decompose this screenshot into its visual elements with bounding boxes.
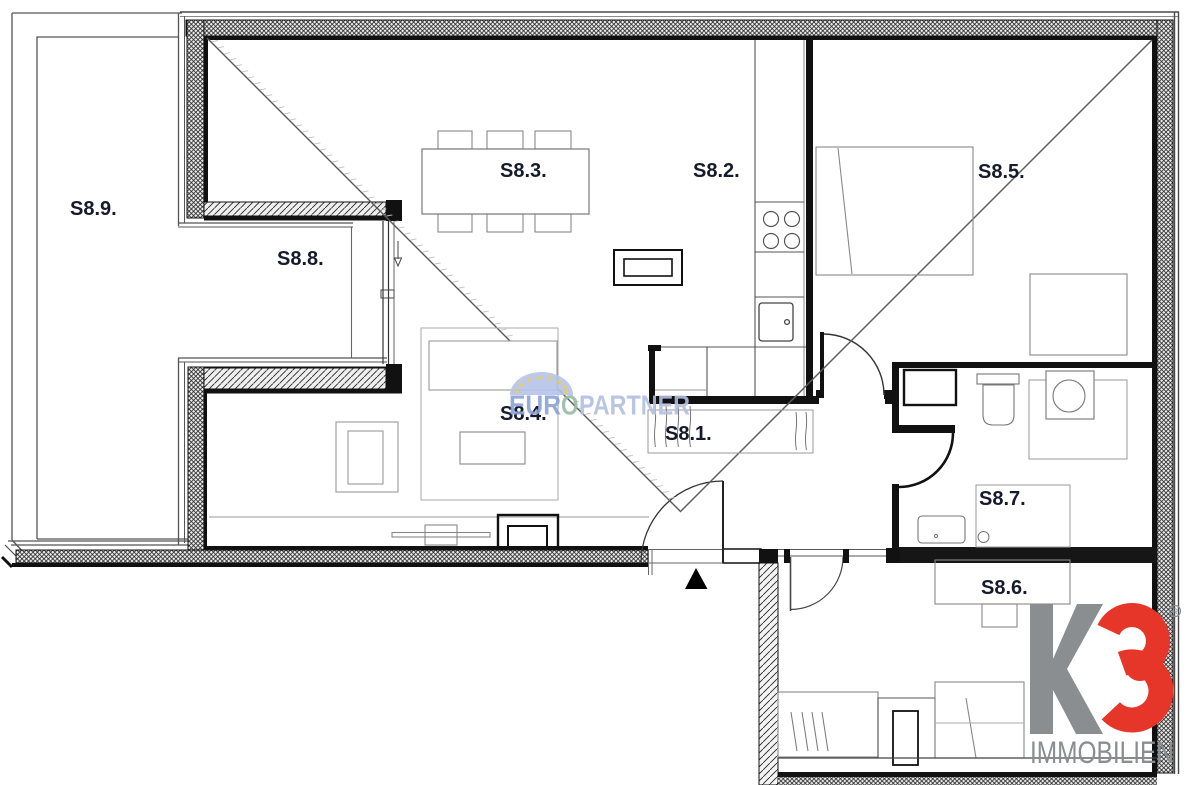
svg-text:S8.9.: S8.9. bbox=[70, 198, 117, 220]
svg-text:S8.3.: S8.3. bbox=[500, 160, 547, 182]
svg-text:S8.6.: S8.6. bbox=[981, 577, 1028, 599]
svg-text:S8.8.: S8.8. bbox=[277, 248, 324, 270]
svg-text:IMMOBILIEN: IMMOBILIEN bbox=[1030, 734, 1174, 770]
svg-text:EUR: EUR bbox=[509, 390, 561, 421]
svg-text:S8.2.: S8.2. bbox=[693, 160, 740, 182]
svg-text:R: R bbox=[1172, 608, 1178, 617]
svg-text:O: O bbox=[561, 390, 579, 421]
svg-text:PARTNER: PARTNER bbox=[579, 390, 690, 421]
svg-text:S8.1.: S8.1. bbox=[665, 423, 712, 445]
svg-text:S8.5.: S8.5. bbox=[978, 161, 1025, 183]
svg-text:S8.7.: S8.7. bbox=[979, 488, 1026, 510]
